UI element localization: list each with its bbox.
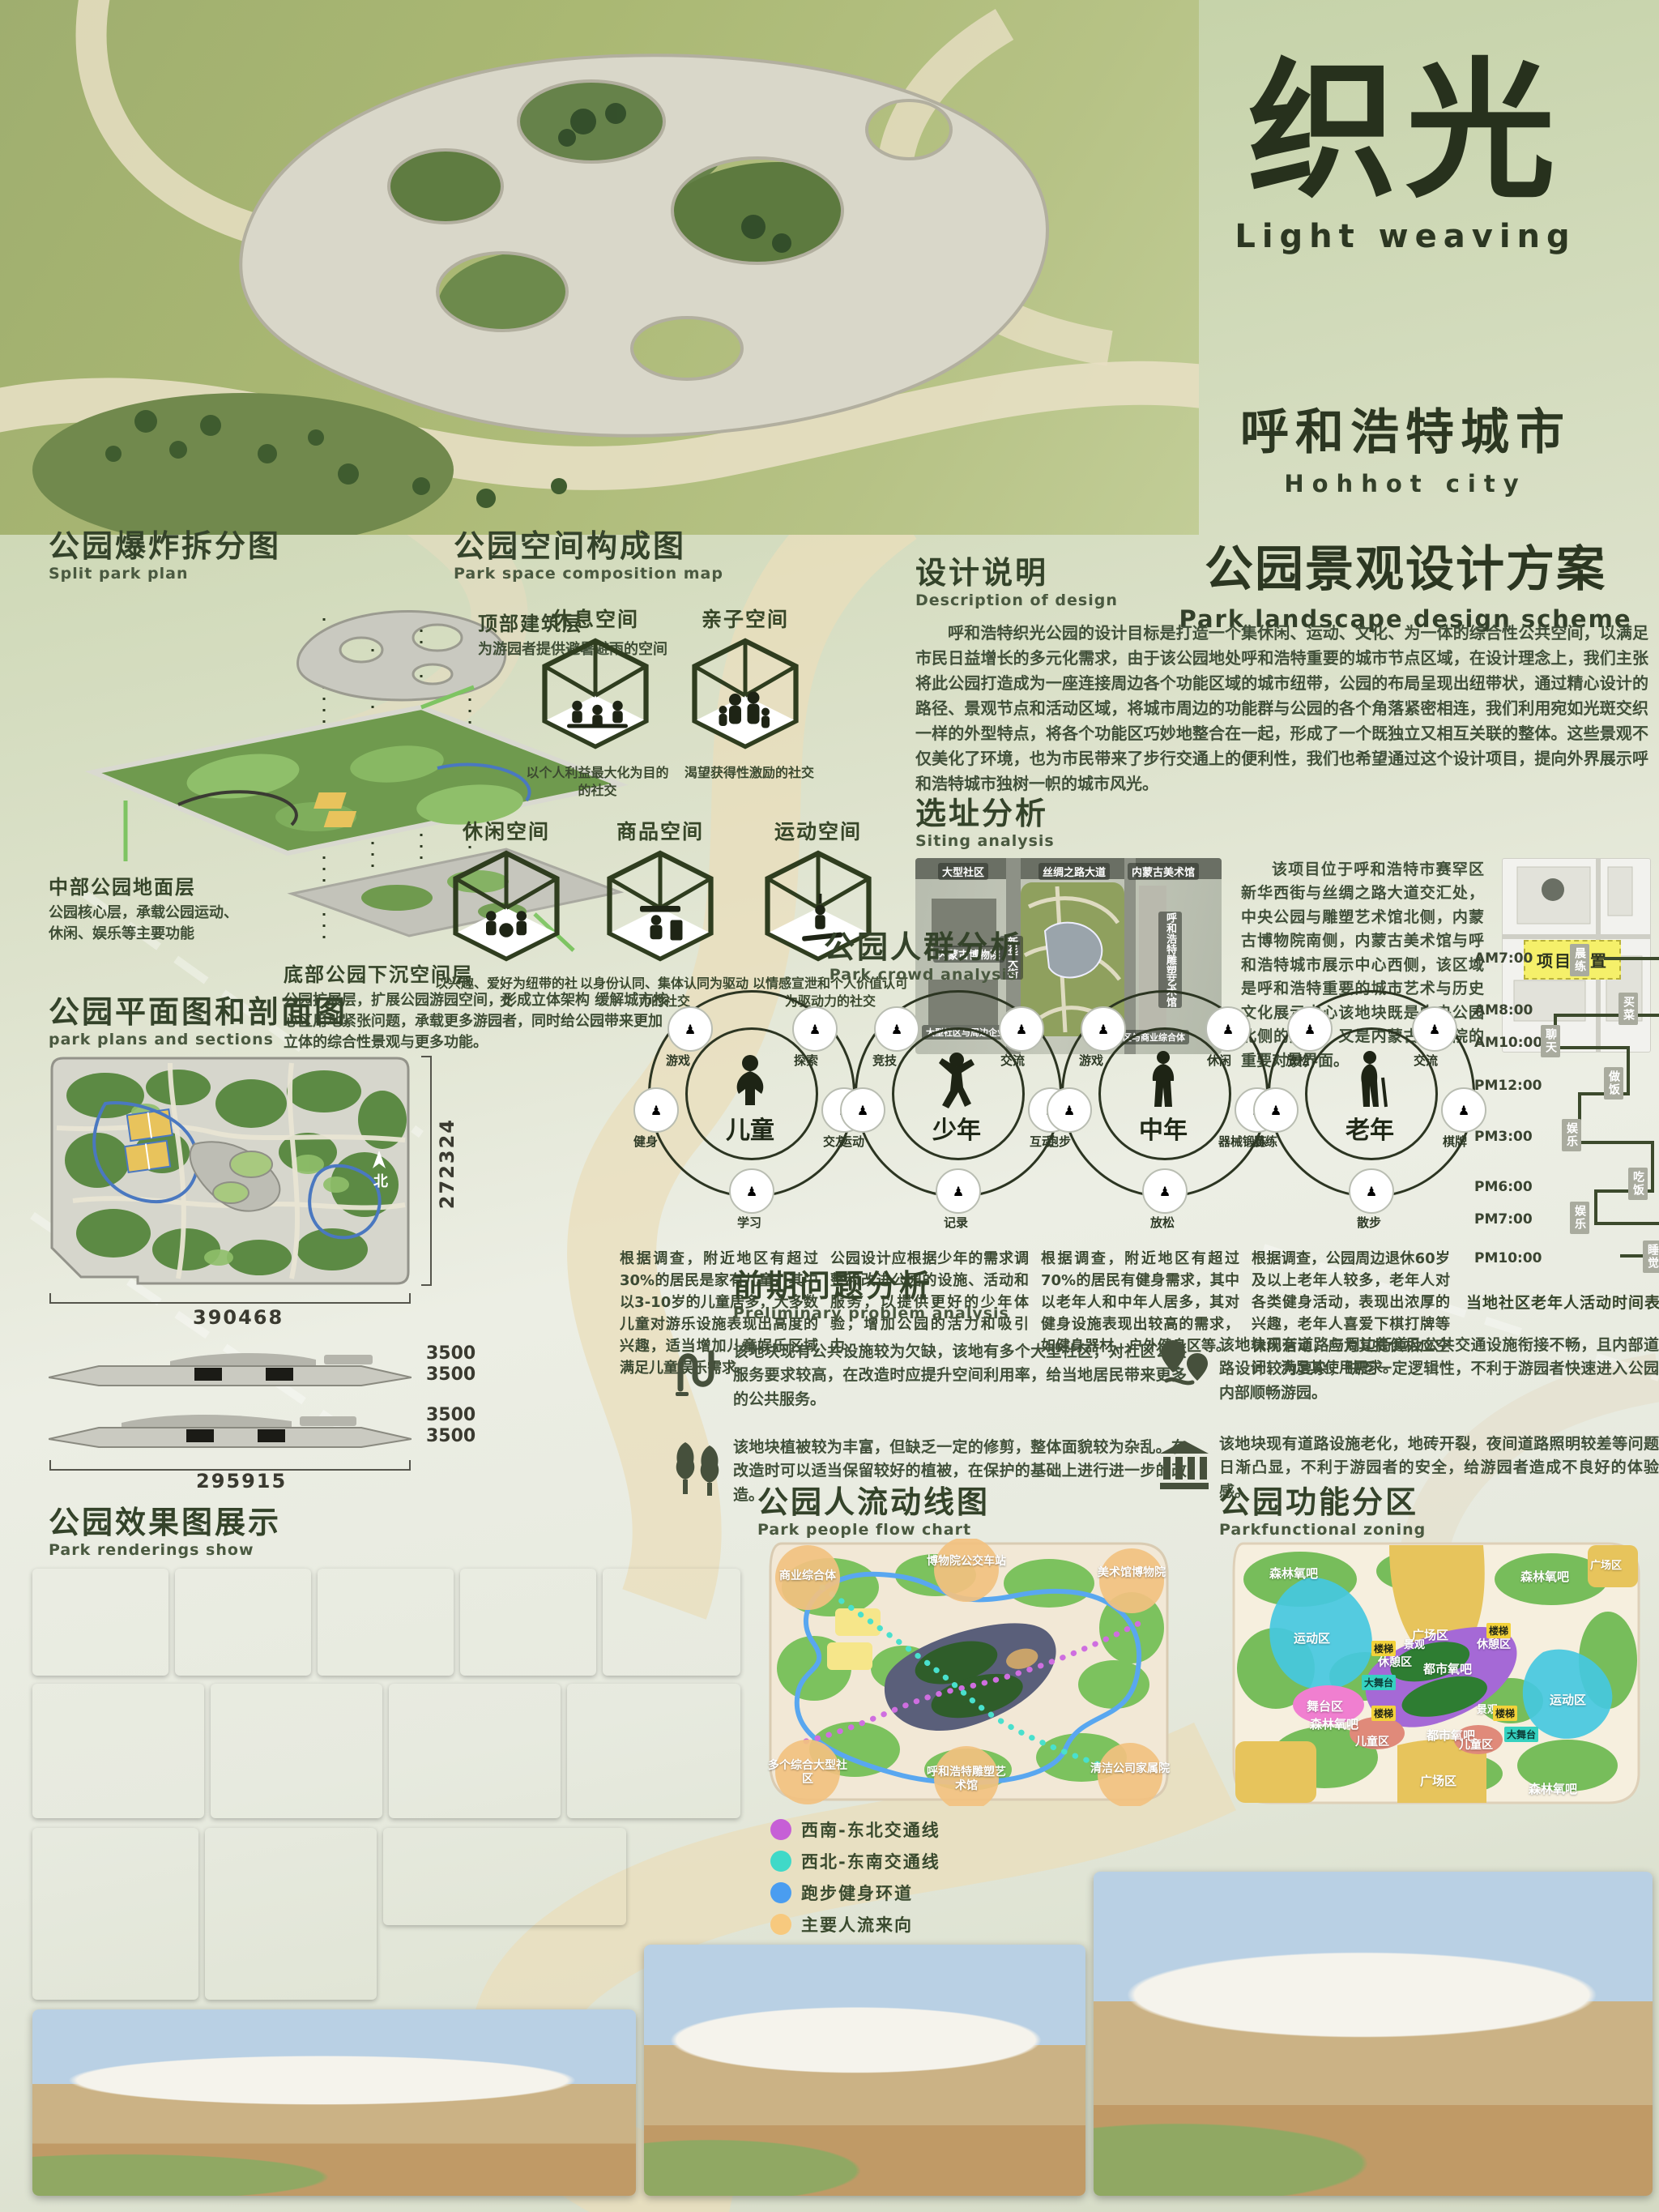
tt-time: PM6:00 — [1474, 1179, 1533, 1195]
zoning-title-cn: 公园功能分区 — [1219, 1487, 1659, 1519]
section-problem-analysis: 前期问题分析 Preliminary problem analysis 该地块现… — [672, 1270, 1659, 1497]
poster-title-cn: 织光 — [1158, 57, 1653, 207]
rendering-thumb-10 — [32, 1828, 198, 2000]
fitness-icon: ♟ — [633, 1087, 679, 1133]
space-label-leisure: 休闲空间 — [441, 816, 571, 845]
zone-chip-big-stage-2: 大舞台 — [1504, 1727, 1538, 1742]
siting-title-cn: 选址分析 — [915, 798, 1653, 831]
competition-icon: ♟ — [874, 1006, 919, 1052]
study-icon: ♟ — [729, 1168, 774, 1214]
iso-cube-leisure — [446, 845, 567, 967]
svg-text:北: 北 — [373, 1173, 388, 1190]
aerial-label-art-gallery: 内蒙古美术馆 — [1128, 863, 1199, 880]
tt-time: AM7:00 — [1474, 950, 1533, 967]
rendering-thumb-2 — [175, 1569, 311, 1676]
composition-title-en: Park space composition map — [454, 565, 907, 583]
rendering-thumb-8 — [389, 1684, 561, 1818]
zoning-map: 森林氧吧 森林氧吧 森林氧吧 森林氧吧 广场区 广场区 广场区 运动区 运动区 … — [1219, 1539, 1653, 1810]
flow-legend: 西南-东北交通线 西北-东南交通线 跑步健身环道 主要人流来向 — [770, 1817, 940, 1944]
tt-activity: 娱乐 — [1562, 1119, 1581, 1151]
crowd-group-elderly: 老年 ♟ 放松 ♟ 交流 ♟ 晨练 ♟ 棋牌 ♟ 散步 — [1266, 989, 1477, 1232]
zone-label-forest-4: 森林氧吧 — [1529, 1780, 1577, 1797]
flow-node-bus-station: 博物院公交车站 — [922, 1555, 1011, 1569]
tt-time: PM12:00 — [1474, 1078, 1542, 1094]
orbit-label: 健身 — [633, 1133, 658, 1150]
renderings-title-en: Park renderings show — [49, 1541, 761, 1559]
elderly-timetable: AM7:00 晨练 AM8:00 买菜 AM10:00 聊天 PM12:00 做… — [1474, 944, 1659, 1309]
legend-label: 西南-东北交通线 — [801, 1817, 940, 1842]
aerial-label-silk-road: 丝绸之路大道 — [1038, 863, 1110, 880]
orbit-label: 放松 — [1150, 1214, 1175, 1231]
tt-activity: 聊天 — [1541, 1025, 1560, 1057]
winding-path-icon — [672, 1345, 721, 1397]
section-space-composition: 公园空间构成图 Park space composition map 休息空间 … — [454, 531, 907, 993]
orbit-label: 放松 — [1286, 1052, 1310, 1069]
tt-activity: 做饭 — [1604, 1067, 1623, 1100]
child-silhouette-icon — [727, 1053, 773, 1107]
teen-silhouette-icon — [934, 1052, 979, 1108]
legend-label: 主要人流来向 — [801, 1912, 913, 1937]
plan-title-cn: 公园平面图和剖面图 — [49, 997, 502, 1029]
elderly-silhouette-icon — [1350, 1050, 1391, 1108]
poster-root: 织光 Light weaving 呼和浩特城市 Hohhot city 公园景观… — [0, 0, 1659, 2212]
map-pins-icon — [1158, 1339, 1210, 1397]
zone-chip-stairs-4: 楼梯 — [1493, 1706, 1517, 1721]
zone-label-stage: 舞台区 — [1307, 1697, 1343, 1715]
crowd-center-middle-aged: 中年 — [1139, 1110, 1188, 1146]
zone-chip-stairs-3: 楼梯 — [1371, 1706, 1396, 1721]
section-people-flow: 公园人流动线图 Park people flow chart — [757, 1487, 1187, 1908]
space-label-sport: 运动空间 — [753, 816, 883, 845]
communication-icon: ♟ — [999, 1006, 1044, 1052]
poster-city-en: Hohhot city — [1158, 470, 1653, 497]
zone-chip-stairs-2: 楼梯 — [1486, 1623, 1511, 1638]
orbit-label: 交流 — [1000, 1052, 1025, 1069]
legend-row-jogging: 跑步健身环道 — [770, 1881, 940, 1905]
tt-activity: 晨练 — [1570, 944, 1589, 976]
park-sections-drawings: 3500 3500 3500 3500 295915 — [49, 1335, 502, 1489]
layer-middle-name: 中部公园地面层 — [49, 871, 239, 899]
floor-height: 3500 — [426, 1364, 476, 1386]
plan-dim-bracket-bottom — [49, 1290, 412, 1308]
zone-label-plaza-2: 广场区 — [1590, 1557, 1622, 1572]
space-label-rest: 休息空间 — [531, 604, 660, 633]
orbit-label: 游戏 — [666, 1052, 690, 1069]
crowd-center-elderly: 老年 — [1346, 1110, 1394, 1146]
layer-middle-desc: 公园核心层，承载公园运动、休闲、娱乐等主要功能 — [49, 903, 239, 945]
legend-dot-cyan — [770, 1851, 791, 1872]
sports-icon: ♟ — [840, 1087, 885, 1133]
design-title-cn: 设计说明 — [915, 557, 1648, 590]
design-body: 呼和浩特织光公园的设计目标是打造一个集休闲、运动、文化、为一体的综合性公共空间，… — [915, 621, 1648, 796]
orbit-label: 游戏 — [1079, 1052, 1103, 1069]
rendering-thumb-11 — [205, 1828, 377, 2000]
zone-label-sport-2: 运动区 — [1550, 1691, 1586, 1708]
crowd-group-children: 儿童 ♟ 游戏 ♟ 探索 ♟ 健身 ♟ 交友 ♟ 学习 — [646, 989, 857, 1232]
iso-cube-family — [684, 633, 806, 754]
bottom-rendering-right — [1094, 1872, 1653, 2196]
zone-label-kids-2: 儿童区 — [1459, 1736, 1493, 1753]
leisure-icon: ♟ — [1205, 1006, 1251, 1052]
space-caption-rest: 以个人利益最大化为目的的社交 — [522, 764, 672, 799]
problems-title-cn: 前期问题分析 — [733, 1270, 1009, 1303]
legend-row-sw-ne: 西南-东北交通线 — [770, 1817, 940, 1842]
rendering-thumb-9 — [567, 1684, 740, 1818]
hero-rendering — [0, 0, 1199, 535]
timetable-route-line — [1531, 944, 1659, 1268]
section-renderings-show: 公园效果图展示 Park renderings show — [49, 1507, 761, 1864]
crowd-group-middle-aged: 中年 ♟ 游戏 ♟ 休闲 ♟ 跑步 ♟ 器械锻炼 ♟ 放松 — [1060, 989, 1270, 1232]
walking-icon: ♟ — [1349, 1168, 1394, 1214]
explore-icon: ♟ — [792, 1006, 838, 1052]
orbit-label: 棋牌 — [1443, 1133, 1467, 1150]
rendering-thumb-3 — [318, 1569, 454, 1676]
floor-height: 3500 — [426, 1426, 476, 1447]
tt-time: PM3:00 — [1474, 1129, 1533, 1145]
legend-dot-blue — [770, 1882, 791, 1903]
bottom-rendering-left — [32, 2009, 636, 2196]
zone-label-view-1: 景观 — [1404, 1636, 1425, 1651]
rendering-thumb-6 — [32, 1684, 204, 1818]
renderings-title-cn: 公园效果图展示 — [49, 1507, 761, 1539]
bank-icon — [1158, 1439, 1210, 1491]
poster-title-en: Light weaving — [1158, 218, 1653, 255]
game-icon: ♟ — [1081, 1006, 1126, 1052]
tt-time: AM8:00 — [1474, 1002, 1533, 1018]
adult-silhouette-icon — [1142, 1050, 1184, 1108]
tt-activity: 睡觉 — [1643, 1241, 1659, 1273]
flow-node-communities: 多个综合大型社区 — [763, 1759, 852, 1787]
zone-chip-big-stage-1: 大舞台 — [1362, 1675, 1396, 1690]
space-caption-family: 渴望获得性激励的社交 — [680, 764, 818, 782]
tt-activity: 吃饭 — [1628, 1168, 1648, 1200]
orbit-label: 跑步 — [1047, 1133, 1071, 1150]
orbit-label: 竞技 — [872, 1052, 897, 1069]
orbit-label: 探索 — [794, 1052, 818, 1069]
poster-city-cn: 呼和浩特城市 — [1158, 393, 1653, 463]
legend-dot-magenta — [770, 1819, 791, 1840]
section2-heights: 3500 3500 — [426, 1405, 476, 1448]
tt-time: PM10:00 — [1474, 1250, 1542, 1266]
rendering-thumb-7 — [211, 1684, 382, 1818]
design-title-en: Description of design — [915, 591, 1648, 609]
hero-illustration — [0, 0, 1199, 535]
plan-width-dim: 390468 — [193, 1306, 284, 1329]
morning-exercise-icon: ♟ — [1253, 1087, 1299, 1133]
floor-height: 3500 — [426, 1343, 476, 1364]
crowd-title-cn: 公园人群分析 — [753, 932, 1094, 964]
zone-label-forest-3: 森林氧吧 — [1310, 1715, 1358, 1732]
sections-dim: 295915 — [196, 1470, 287, 1492]
section-strip-2 — [49, 1407, 412, 1455]
crowd-center-teen: 少年 — [932, 1110, 981, 1146]
rendering-thumb-12 — [383, 1828, 626, 1925]
zone-label-forest-2: 森林氧吧 — [1520, 1568, 1569, 1585]
orbit-label: 散步 — [1357, 1214, 1381, 1231]
tt-time: PM7:00 — [1474, 1211, 1533, 1228]
problem-text-1: 该地块现有公共设施较为欠缺，该地有多个大型社区，对社区公共服务要求较高，在改造时… — [733, 1340, 1187, 1411]
park-plan-drawing: 北 — [49, 1055, 412, 1287]
running-icon: ♟ — [1047, 1087, 1092, 1133]
zone-label-rest-2: 休憩区 — [1477, 1636, 1511, 1652]
zone-label-forest-1: 森林氧吧 — [1269, 1565, 1318, 1582]
siting-title-en: Siting analysis — [915, 832, 1653, 850]
zoning-title-en: Parkfunctional zoning — [1219, 1521, 1659, 1539]
legend-row-nw-se: 西北-东南交通线 — [770, 1849, 940, 1873]
space-label-family: 亲子空间 — [680, 604, 810, 633]
flow-node-gallery-museum: 美术馆博物院 — [1087, 1566, 1176, 1580]
legend-label: 西北-东南交通线 — [801, 1849, 940, 1873]
section1-heights: 3500 3500 — [426, 1343, 476, 1386]
zone-label-urban-o2-1: 都市氧吧 — [1423, 1660, 1472, 1677]
orbit-label: 交流 — [1414, 1052, 1438, 1069]
legend-row-main-flow: 主要人流来向 — [770, 1912, 940, 1937]
chat-icon: ♟ — [1412, 1006, 1457, 1052]
tt-activity: 买菜 — [1618, 993, 1638, 1025]
orbit-label: 休闲 — [1207, 1052, 1231, 1069]
relax-icon: ♟ — [1287, 1006, 1333, 1052]
bottom-rendering-center — [644, 1945, 1085, 2196]
plan-title-en: park plans and sections — [49, 1031, 502, 1048]
problems-title-en: Preliminary problem analysis — [733, 1305, 1009, 1322]
problem-text-3: 该地块现有道路与周边街道及公共交通设施衔接不畅，且内部道路设计较为复杂，缺乏一定… — [1219, 1334, 1659, 1405]
zone-chip-stairs-1: 楼梯 — [1371, 1641, 1396, 1656]
iso-cube-rest — [535, 633, 656, 754]
tt-time: AM10:00 — [1474, 1035, 1542, 1051]
legend-dot-orange — [770, 1914, 791, 1935]
floor-height: 3500 — [426, 1405, 476, 1426]
layer-annotation-middle: 中部公园地面层 公园核心层，承载公园运动、休闲、娱乐等主要功能 — [49, 871, 239, 945]
orbit-label: 晨练 — [1253, 1133, 1277, 1150]
flow-node-sculpture-hall: 呼和浩特雕塑艺术馆 — [922, 1766, 1011, 1793]
crowd-title-en: Park crowd analysis — [753, 966, 1094, 984]
legend-label: 跑步健身环道 — [801, 1881, 913, 1905]
zone-label-rest-1: 休憩区 — [1378, 1654, 1412, 1670]
flow-map: 商业综合体 博物院公交车站 美术馆博物院 多个综合大型社区 呼和浩特雕塑艺术馆 … — [757, 1539, 1179, 1806]
space-label-commodity: 商品空间 — [595, 816, 725, 845]
relax-icon: ♟ — [1142, 1168, 1188, 1214]
rendering-thumb-5 — [603, 1569, 740, 1676]
zone-label-plaza-3: 广场区 — [1420, 1772, 1456, 1789]
section-strip-1 — [49, 1345, 412, 1394]
orbit-label: 记录 — [944, 1214, 968, 1231]
section-functional-zoning: 公园功能分区 Parkfunctional zoning — [1219, 1487, 1659, 1827]
aerial-label-community: 大型社区 — [938, 863, 988, 880]
recording-icon: ♟ — [936, 1168, 981, 1214]
zone-label-kids-1: 儿童区 — [1355, 1733, 1389, 1749]
crowd-group-teen: 少年 ♟ 竞技 ♟ 交流 ♟ 运动 ♟ 互动 ♟ 记录 — [853, 989, 1064, 1232]
flow-title-en: Park people flow chart — [757, 1521, 1187, 1539]
section-plans-sections: 公园平面图和剖面图 park plans and sections — [49, 997, 502, 1361]
orbit-label: 学习 — [737, 1214, 761, 1231]
composition-title-cn: 公园空间构成图 — [454, 531, 907, 563]
rendering-thumb-4 — [460, 1569, 596, 1676]
tt-activity: 娱乐 — [1570, 1202, 1589, 1234]
trees-icon — [672, 1441, 724, 1497]
section-design-description: 设计说明 Description of design 呼和浩特织光公园的设计目标… — [915, 557, 1648, 796]
flow-title-cn: 公园人流动线图 — [757, 1487, 1187, 1519]
zone-label-sport-1: 运动区 — [1294, 1629, 1330, 1646]
flow-node-company-housing: 清洁公司家属院 — [1085, 1762, 1175, 1776]
plan-height-dim: 272324 — [436, 1118, 458, 1209]
flow-node-commercial: 商业综合体 — [763, 1569, 852, 1583]
crowd-center-children: 儿童 — [726, 1110, 774, 1146]
title-block: 织光 Light weaving 呼和浩特城市 Hohhot city 公园景观… — [1158, 57, 1653, 633]
play-icon: ♟ — [667, 1006, 713, 1052]
orbit-label: 运动 — [840, 1133, 864, 1150]
rendering-thumb-1 — [32, 1569, 168, 1676]
